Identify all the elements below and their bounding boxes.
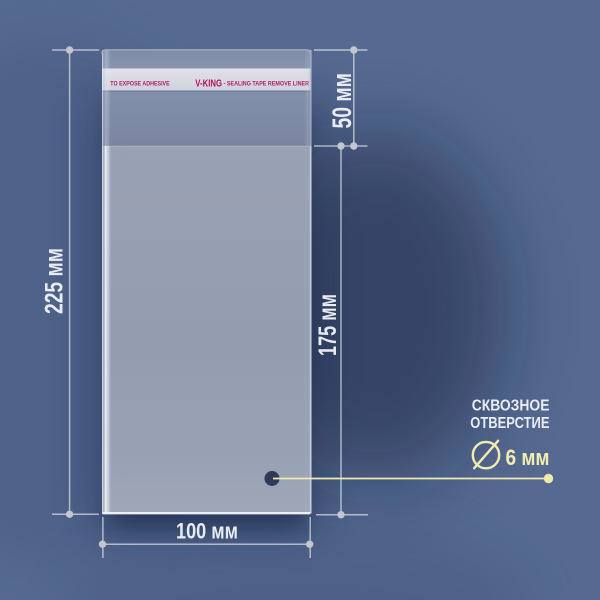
svg-text:50 мм: 50 мм: [327, 73, 357, 129]
svg-text:V-KING: V-KING: [195, 77, 222, 89]
svg-text:6 мм: 6 мм: [506, 445, 550, 470]
svg-text:- SEALING TAPE REMOVE LINER: - SEALING TAPE REMOVE LINER: [224, 80, 310, 87]
svg-text:СКВОЗНОЕ: СКВОЗНОЕ: [472, 397, 550, 414]
svg-text:100 мм: 100 мм: [176, 518, 238, 543]
svg-text:175 мм: 175 мм: [314, 294, 342, 356]
svg-text:225 мм: 225 мм: [41, 248, 69, 314]
svg-text:ОТВЕРСТИЕ: ОТВЕРСТИЕ: [470, 415, 549, 432]
svg-text:TO EXPOSE ADHESIVE: TO EXPOSE ADHESIVE: [110, 80, 169, 87]
